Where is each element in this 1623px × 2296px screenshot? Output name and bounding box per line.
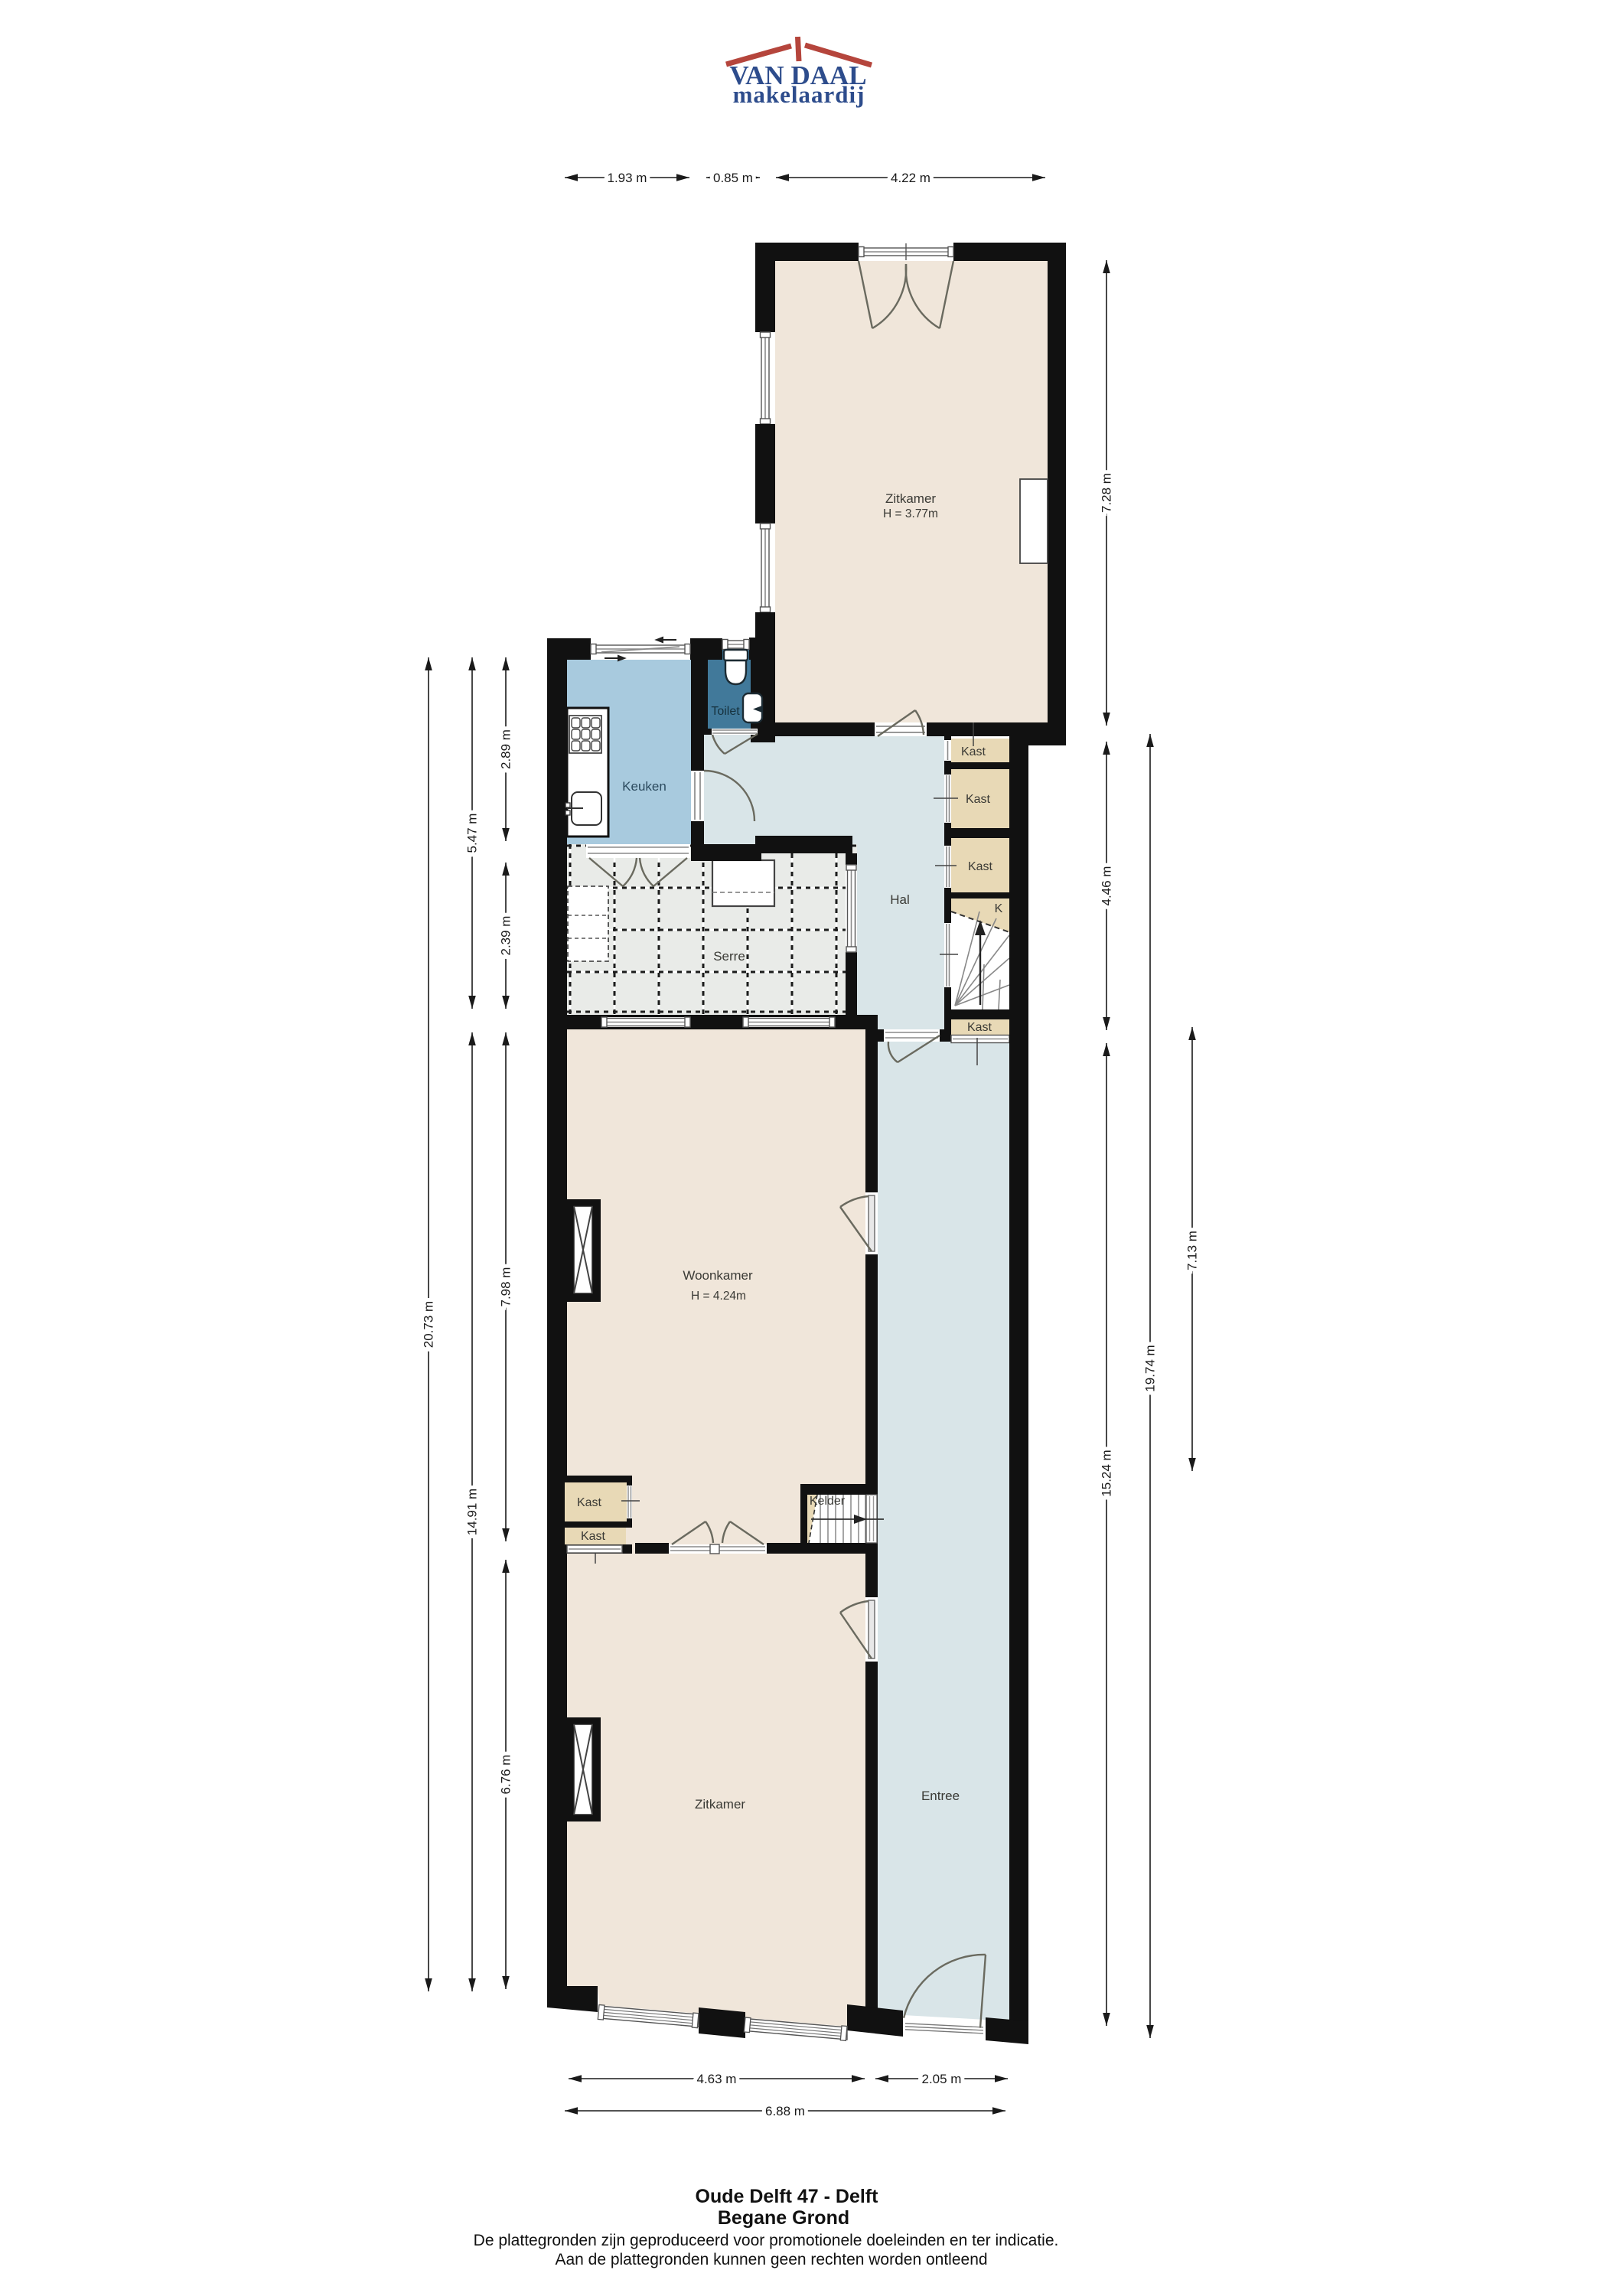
svg-text:2.89 m: 2.89 m — [499, 729, 513, 769]
svg-text:19.74 m: 19.74 m — [1143, 1345, 1158, 1391]
svg-text:Entree: Entree — [921, 1789, 960, 1803]
svg-text:4.46 m: 4.46 m — [1100, 866, 1114, 906]
svg-text:De plattegronden zijn geproduc: De plattegronden zijn geproduceerd voor … — [474, 2232, 1059, 2249]
svg-text:6.88 m: 6.88 m — [765, 2104, 805, 2118]
svg-text:H = 3.77m: H = 3.77m — [883, 507, 938, 520]
svg-text:Toilet: Toilet — [711, 705, 740, 718]
svg-text:Serre: Serre — [713, 949, 745, 964]
svg-text:Kast: Kast — [967, 1021, 992, 1034]
svg-text:Oude Delft 47 - Delft: Oude Delft 47 - Delft — [696, 2186, 879, 2207]
svg-text:0.85 m: 0.85 m — [713, 171, 753, 185]
svg-text:Kelder: Kelder — [810, 1495, 846, 1508]
svg-text:K: K — [995, 902, 1003, 915]
svg-text:Kast: Kast — [961, 745, 986, 758]
svg-text:7.13 m: 7.13 m — [1185, 1231, 1200, 1270]
svg-text:1.93 m: 1.93 m — [608, 171, 647, 185]
svg-text:4.22 m: 4.22 m — [891, 171, 930, 185]
svg-text:Aan de plattegronden kunnen ge: Aan de plattegronden kunnen geen rechten… — [555, 2251, 987, 2268]
svg-text:Keuken: Keuken — [622, 779, 666, 794]
svg-text:15.24 m: 15.24 m — [1100, 1450, 1114, 1496]
svg-text:4.63 m: 4.63 m — [697, 2072, 737, 2086]
svg-text:7.28 m: 7.28 m — [1100, 473, 1114, 513]
svg-text:Begane Grond: Begane Grond — [718, 2207, 849, 2229]
svg-text:Zitkamer: Zitkamer — [885, 491, 936, 506]
svg-text:H = 4.24m: H = 4.24m — [691, 1290, 746, 1303]
svg-text:makelaardij: makelaardij — [733, 81, 865, 108]
svg-text:Woonkamer: Woonkamer — [683, 1268, 753, 1283]
svg-text:Kast: Kast — [966, 793, 991, 806]
svg-text:Kast: Kast — [577, 1496, 602, 1509]
svg-text:2.39 m: 2.39 m — [499, 916, 513, 956]
svg-text:5.47 m: 5.47 m — [465, 814, 480, 853]
svg-text:20.73 m: 20.73 m — [422, 1301, 436, 1348]
svg-text:7.98 m: 7.98 m — [499, 1267, 513, 1307]
svg-text:Kast: Kast — [968, 860, 993, 873]
svg-text:Zitkamer: Zitkamer — [695, 1797, 745, 1812]
svg-text:6.76 m: 6.76 m — [499, 1755, 513, 1795]
svg-text:14.91 m: 14.91 m — [465, 1489, 480, 1535]
svg-text:Kast: Kast — [581, 1530, 606, 1543]
svg-text:2.05 m: 2.05 m — [922, 2072, 962, 2086]
svg-text:Hal: Hal — [890, 892, 910, 907]
